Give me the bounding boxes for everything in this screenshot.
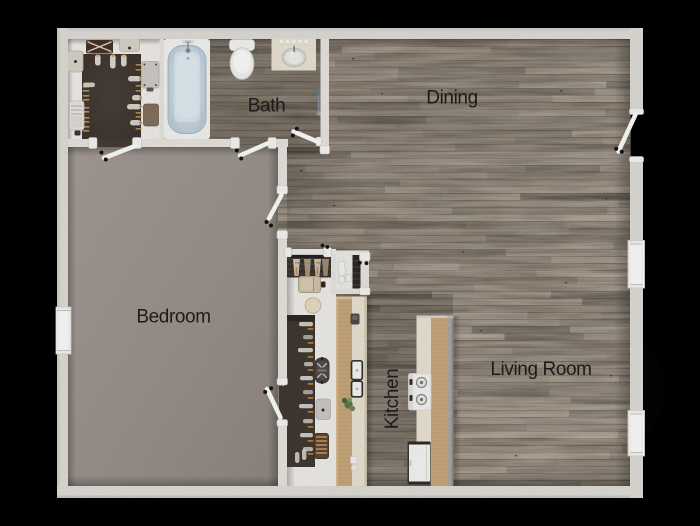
svg-text:Dining: Dining <box>426 88 477 109</box>
svg-text:Living Room: Living Room <box>490 359 591 380</box>
svg-text:Bath: Bath <box>248 96 286 117</box>
svg-text:Bedroom: Bedroom <box>136 307 210 328</box>
svg-text:Kitchen: Kitchen <box>382 369 403 430</box>
